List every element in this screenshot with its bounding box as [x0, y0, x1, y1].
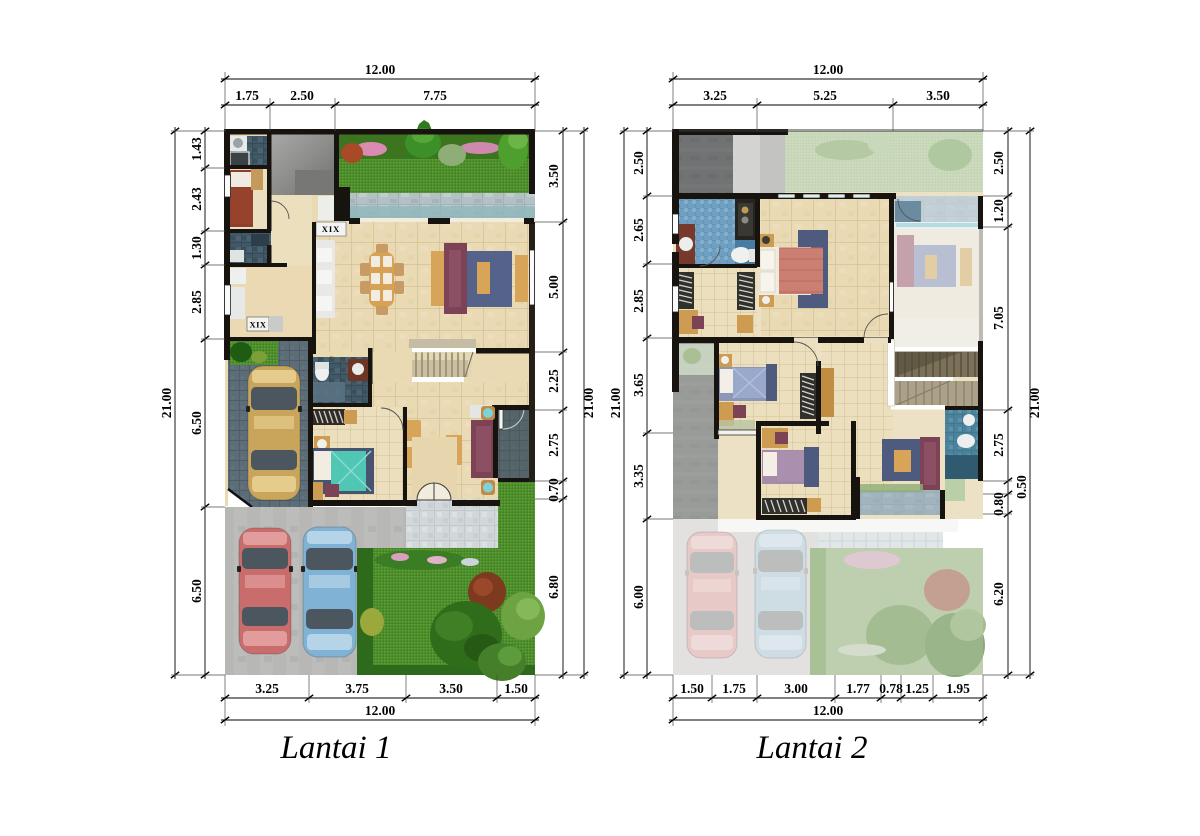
svg-text:2.50: 2.50 — [290, 88, 314, 103]
svg-text:XIX: XIX — [322, 224, 341, 234]
svg-text:2.43: 2.43 — [189, 187, 204, 211]
svg-text:1.95: 1.95 — [946, 681, 970, 696]
svg-text:1.75: 1.75 — [722, 681, 746, 696]
svg-text:3.25: 3.25 — [255, 681, 279, 696]
svg-text:XIX: XIX — [249, 320, 266, 330]
svg-text:2.85: 2.85 — [631, 289, 646, 313]
svg-text:3.65: 3.65 — [631, 373, 646, 397]
svg-text:3.75: 3.75 — [345, 681, 369, 696]
svg-text:3.25: 3.25 — [703, 88, 727, 103]
svg-text:3.00: 3.00 — [784, 681, 808, 696]
svg-text:6.50: 6.50 — [189, 411, 204, 435]
svg-text:7.75: 7.75 — [423, 88, 447, 103]
svg-text:12.00: 12.00 — [365, 703, 396, 718]
svg-text:5.25: 5.25 — [813, 88, 837, 103]
svg-text:21.00: 21.00 — [581, 388, 596, 419]
svg-text:1.50: 1.50 — [680, 681, 704, 696]
svg-text:1.20: 1.20 — [991, 199, 1006, 223]
svg-text:2.25: 2.25 — [546, 369, 561, 393]
svg-text:1.77: 1.77 — [846, 681, 870, 696]
svg-text:3.50: 3.50 — [439, 681, 463, 696]
svg-text:3.35: 3.35 — [631, 464, 646, 488]
svg-text:0.70: 0.70 — [546, 478, 561, 502]
svg-text:Lantai 1: Lantai 1 — [280, 730, 392, 766]
svg-text:1.43: 1.43 — [189, 137, 204, 161]
svg-text:3.50: 3.50 — [926, 88, 950, 103]
svg-text:12.00: 12.00 — [813, 62, 844, 77]
svg-text:6.50: 6.50 — [189, 579, 204, 603]
svg-text:2.85: 2.85 — [189, 290, 204, 314]
svg-text:2.50: 2.50 — [631, 151, 646, 175]
svg-text:6.00: 6.00 — [631, 585, 646, 609]
svg-text:1.50: 1.50 — [504, 681, 528, 696]
svg-text:3.50: 3.50 — [546, 164, 561, 188]
svg-text:2.75: 2.75 — [991, 433, 1006, 457]
svg-text:21.00: 21.00 — [159, 388, 174, 419]
svg-text:6.80: 6.80 — [546, 575, 561, 599]
svg-text:0.80: 0.80 — [991, 492, 1006, 516]
svg-text:1.75: 1.75 — [235, 88, 259, 103]
svg-text:7.05: 7.05 — [991, 306, 1006, 330]
svg-text:0.50: 0.50 — [1014, 475, 1029, 499]
svg-text:5.00: 5.00 — [546, 275, 561, 299]
svg-text:6.20: 6.20 — [991, 582, 1006, 606]
svg-text:12.00: 12.00 — [365, 62, 396, 77]
svg-text:2.65: 2.65 — [631, 218, 646, 242]
svg-text:21.00: 21.00 — [1027, 388, 1042, 419]
svg-text:2.75: 2.75 — [546, 433, 561, 457]
svg-text:0.78: 0.78 — [879, 681, 903, 696]
svg-text:2.50: 2.50 — [991, 151, 1006, 175]
svg-text:Lantai 2: Lantai 2 — [756, 730, 868, 766]
svg-text:12.00: 12.00 — [813, 703, 844, 718]
svg-text:21.00: 21.00 — [608, 388, 623, 419]
svg-text:1.25: 1.25 — [905, 681, 929, 696]
svg-text:1.30: 1.30 — [189, 236, 204, 260]
